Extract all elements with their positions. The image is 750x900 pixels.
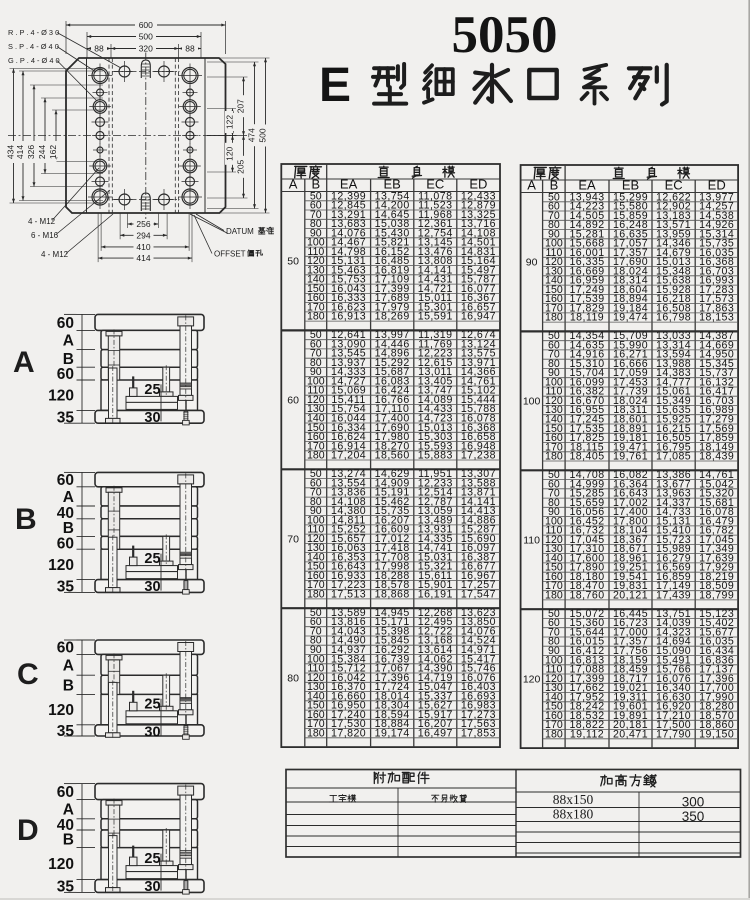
svg-text:17,085: 17,085 <box>656 451 691 463</box>
svg-text:G . P . 4 - Ø 4 0: G . P . 4 - Ø 4 0 <box>8 56 60 65</box>
svg-text:18,269: 18,269 <box>375 311 410 323</box>
svg-text:30: 30 <box>144 724 160 740</box>
svg-text:80: 80 <box>287 672 299 684</box>
svg-text:60: 60 <box>57 366 74 383</box>
svg-text:120: 120 <box>225 146 235 160</box>
svg-text:120: 120 <box>48 856 74 873</box>
svg-text:35: 35 <box>57 723 75 740</box>
svg-text:180: 180 <box>307 588 325 600</box>
svg-text:EA: EA <box>340 176 358 191</box>
svg-text:30: 30 <box>144 879 160 895</box>
svg-text:410: 410 <box>136 242 150 252</box>
svg-text:D: D <box>17 814 39 847</box>
svg-text:16,497: 16,497 <box>418 727 453 739</box>
svg-text:EB: EB <box>622 177 639 192</box>
svg-text:17,547: 17,547 <box>461 588 496 600</box>
svg-text:C: C <box>17 658 39 691</box>
svg-text:A: A <box>13 346 35 379</box>
svg-text:500: 500 <box>139 32 153 42</box>
svg-text:19,112: 19,112 <box>570 728 604 740</box>
svg-text:120: 120 <box>48 557 74 574</box>
svg-text:180: 180 <box>307 450 325 462</box>
svg-text:600: 600 <box>139 20 153 30</box>
svg-text:B: B <box>63 831 74 848</box>
svg-text:120: 120 <box>48 702 74 719</box>
svg-text:R . P . 4 - Ø 3 0: R . P . 4 - Ø 3 0 <box>8 28 59 37</box>
svg-text:60: 60 <box>57 472 74 489</box>
svg-text:110: 110 <box>523 535 540 547</box>
svg-text:EB: EB <box>384 176 401 191</box>
svg-text:EA: EA <box>578 177 596 192</box>
svg-text:DATUM: DATUM <box>226 227 254 236</box>
svg-text:30: 30 <box>144 410 160 426</box>
svg-text:70: 70 <box>287 534 299 546</box>
svg-text:100: 100 <box>523 396 541 408</box>
svg-text:25: 25 <box>144 851 160 867</box>
svg-text:16,947: 16,947 <box>461 311 496 323</box>
svg-text:500: 500 <box>258 128 268 142</box>
svg-text:88: 88 <box>185 44 195 54</box>
svg-text:180: 180 <box>545 451 563 463</box>
svg-text:A: A <box>63 489 74 506</box>
svg-text:19,474: 19,474 <box>613 312 648 324</box>
svg-text:326: 326 <box>26 145 36 159</box>
svg-text:18,405: 18,405 <box>569 451 604 463</box>
svg-text:50: 50 <box>287 256 299 268</box>
svg-text:60: 60 <box>287 395 299 407</box>
svg-text:4 - M12: 4 - M12 <box>28 217 56 226</box>
svg-text:120: 120 <box>523 673 541 685</box>
svg-text:414: 414 <box>136 253 150 263</box>
svg-text:256: 256 <box>136 219 150 229</box>
svg-text:18,760: 18,760 <box>569 589 604 601</box>
svg-text:16,798: 16,798 <box>656 312 691 324</box>
svg-text:90: 90 <box>526 257 538 269</box>
svg-text:294: 294 <box>136 230 150 240</box>
svg-text:15,591: 15,591 <box>418 311 453 323</box>
svg-text:60: 60 <box>57 535 74 552</box>
svg-text:A: A <box>527 177 536 192</box>
svg-text:17,439: 17,439 <box>656 589 691 601</box>
svg-text:35: 35 <box>57 579 75 596</box>
svg-text:180: 180 <box>307 311 325 323</box>
svg-text:ED: ED <box>708 177 726 192</box>
svg-text:205: 205 <box>236 159 246 173</box>
svg-text:19,174: 19,174 <box>375 727 410 739</box>
svg-text:OFFSET: OFFSET <box>214 250 246 259</box>
svg-text:17,853: 17,853 <box>461 727 496 739</box>
svg-text:A: A <box>63 657 74 674</box>
svg-text:ED: ED <box>469 176 487 191</box>
svg-text:15,883: 15,883 <box>418 450 453 462</box>
svg-text:19,150: 19,150 <box>699 728 734 740</box>
svg-text:30: 30 <box>144 579 160 595</box>
svg-text:16,913: 16,913 <box>331 311 366 323</box>
svg-text:S . P . 4 - Ø 4 0: S . P . 4 - Ø 4 0 <box>8 42 59 51</box>
svg-text:88: 88 <box>94 44 104 54</box>
svg-text:19,761: 19,761 <box>613 451 648 463</box>
svg-text:180: 180 <box>545 312 563 324</box>
svg-text:20,121: 20,121 <box>613 589 648 601</box>
svg-text:25: 25 <box>144 551 160 567</box>
svg-text:60: 60 <box>57 315 74 332</box>
svg-text:A: A <box>63 333 74 350</box>
svg-text:18,560: 18,560 <box>375 450 410 462</box>
svg-text:434: 434 <box>6 145 16 159</box>
svg-text:320: 320 <box>139 44 153 54</box>
svg-text:180: 180 <box>545 589 563 601</box>
svg-text:120: 120 <box>48 388 74 405</box>
svg-text:B: B <box>63 677 74 694</box>
svg-text:18,868: 18,868 <box>375 588 410 600</box>
svg-text:17,204: 17,204 <box>331 450 366 462</box>
svg-text:35: 35 <box>57 409 75 426</box>
svg-text:B: B <box>311 176 320 191</box>
svg-text:88x180: 88x180 <box>553 807 594 822</box>
svg-text:180: 180 <box>545 728 563 740</box>
svg-text:25: 25 <box>144 696 160 712</box>
svg-text:180: 180 <box>307 727 325 739</box>
svg-text:18,799: 18,799 <box>699 589 734 601</box>
svg-text:18,153: 18,153 <box>699 312 734 324</box>
svg-text:17,238: 17,238 <box>461 450 496 462</box>
svg-text:60: 60 <box>57 640 74 657</box>
svg-text:18,439: 18,439 <box>699 451 734 463</box>
svg-text:17,790: 17,790 <box>656 728 691 740</box>
svg-text:B: B <box>550 177 559 192</box>
svg-text:474: 474 <box>247 128 257 142</box>
svg-text:25: 25 <box>144 382 160 398</box>
svg-text:122: 122 <box>225 115 235 129</box>
svg-text:88x150: 88x150 <box>553 792 594 807</box>
svg-text:EC: EC <box>665 177 683 192</box>
svg-text:414: 414 <box>15 145 25 159</box>
svg-text:20,471: 20,471 <box>613 728 648 740</box>
svg-text:162: 162 <box>48 145 58 159</box>
svg-text:17,820: 17,820 <box>331 727 366 739</box>
svg-text:4 - M12: 4 - M12 <box>41 250 69 259</box>
svg-text:60: 60 <box>57 784 74 801</box>
svg-text:300: 300 <box>682 795 705 810</box>
svg-text:17,513: 17,513 <box>331 588 366 600</box>
svg-text:35: 35 <box>57 879 75 896</box>
svg-text:18,119: 18,119 <box>570 312 604 324</box>
svg-text:A: A <box>289 176 298 191</box>
svg-text:350: 350 <box>682 809 705 824</box>
svg-text:EC: EC <box>426 176 444 191</box>
svg-text:B: B <box>15 503 37 536</box>
svg-text:244: 244 <box>37 145 47 159</box>
svg-text:6 - M16: 6 - M16 <box>31 231 59 240</box>
svg-text:16,191: 16,191 <box>418 588 453 600</box>
svg-text:207: 207 <box>236 99 246 113</box>
